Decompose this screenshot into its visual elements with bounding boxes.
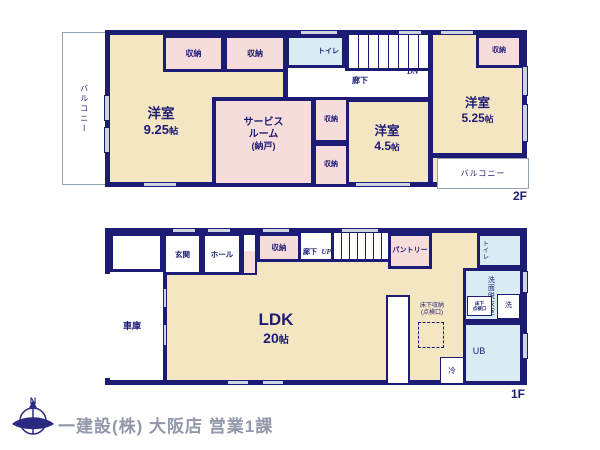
f2-corridor-label: 廊下 [352, 76, 368, 86]
f2-room-925-name: 洋室 [116, 106, 206, 122]
f1-toilet-label: トイレ [480, 236, 488, 264]
f1-washer-label: 洗 [505, 302, 512, 310]
f1-shoe-cabinet-lower [244, 251, 255, 273]
f2-service-room-label-1: サービス [216, 117, 311, 129]
f1-entrance-room: 玄関 [163, 233, 202, 275]
f1-floor-hatch-label-2: 点検口 [473, 306, 487, 311]
window [143, 182, 177, 187]
f1-underfloor-storage-hatch [418, 322, 444, 348]
f1-closet: 収納 [257, 233, 301, 262]
f2-balcony-left: バルコニー [62, 32, 106, 185]
f2-closet-b: 収納 [224, 35, 286, 72]
f2-closet-a-label: 収納 [186, 49, 202, 59]
f2-closet-c: 収納 [313, 97, 349, 143]
window [104, 95, 110, 121]
window [207, 228, 231, 233]
window [341, 228, 379, 233]
f2-stairs [345, 35, 428, 71]
f1-corridor-up: 廊下 UP [303, 241, 331, 259]
f1-fridge-label: 冷 [448, 366, 456, 375]
f2-service-room-label-3: (納戸) [216, 141, 311, 152]
f2-closet-c-label: 収納 [324, 116, 338, 124]
window [355, 182, 411, 187]
f1-kitchen-counter [386, 295, 410, 385]
f1-closet-label: 収納 [272, 243, 287, 252]
compass-icon: N [12, 396, 54, 434]
f2-closet-a: 収納 [163, 35, 224, 72]
f1-pantry: パントリー [388, 233, 432, 269]
f1-floor-hatch: 床下 点検口 [467, 296, 492, 316]
f2-room-525-name: 洋室 [433, 96, 522, 111]
f1-ldk-name: LDK [226, 310, 326, 330]
window [227, 380, 249, 385]
f2-room-45: 洋室 4.5帖 [347, 124, 427, 153]
f2-stairs-dn-label: DN [407, 67, 419, 77]
f2-room-925: 洋室 9.25帖 [116, 106, 206, 138]
f2-balcony-left-label: バルコニー [79, 84, 89, 134]
floor-plan: バルコニー 収納 収納 トイレ 廊下 DN サービス ルーム (納戸) 収納 収… [0, 0, 600, 450]
compass-north-label: N [30, 396, 37, 406]
f1-washer-pan: 洗 [497, 294, 520, 319]
f2-room-45-size: 4.5 [374, 139, 391, 153]
window [522, 66, 528, 96]
f2-room-525-unit: 帖 [485, 114, 494, 124]
window [262, 380, 284, 385]
f1-pantry-label: パントリー [392, 247, 427, 255]
window [522, 271, 528, 293]
window [262, 228, 290, 233]
window [104, 127, 110, 153]
f1-underfloor-storage: 床下収納 (点検口) [412, 303, 452, 317]
f2-service-room: サービス ルーム (納戸) [212, 97, 315, 187]
footer-company-text: 一建設(株) 大阪店 営業1課 [58, 412, 273, 437]
f2-room-925-size: 9.25 [144, 122, 169, 137]
window [300, 30, 338, 35]
window [163, 324, 167, 346]
window [398, 30, 422, 35]
f1-ldk-size: 20 [263, 330, 279, 346]
f1-stairs-up-label: UP [321, 248, 330, 256]
f2-closet-e: 収納 [476, 35, 522, 68]
f2-closet-d-label: 収納 [324, 161, 338, 169]
f1-garage-label: 車庫 [107, 321, 157, 332]
f1-stairs [331, 233, 388, 259]
window [522, 104, 528, 142]
f2-toilet-label: トイレ [318, 48, 339, 56]
f1-corridor-label: 廊下 [303, 249, 317, 256]
f2-balcony-right-label: バルコニー [461, 169, 506, 179]
f2-balcony-right: バルコニー [437, 158, 529, 189]
f2-floor-label: 2F [495, 189, 527, 203]
f2-closet-d: 収納 [313, 143, 349, 187]
f1-hall-label: ホール [211, 250, 234, 259]
f2-closet-b-label: 収納 [247, 49, 263, 59]
f2-room-45-name: 洋室 [347, 124, 427, 139]
window [172, 228, 196, 233]
window [440, 30, 474, 35]
f2-closet-e-label: 収納 [492, 47, 506, 55]
f1-hall-room: ホール [202, 233, 242, 275]
f1-shoe-cabinet [242, 233, 257, 275]
f1-ldk: LDK 20帖 [226, 310, 326, 347]
f2-service-room-label-2: ルーム [216, 129, 311, 141]
f1-unit-bath-label: UB [468, 346, 490, 357]
f1-fridge: 冷 [440, 357, 464, 384]
f2-toilet-room: トイレ [286, 35, 345, 68]
f2-room-525-size: 5.25 [462, 111, 485, 125]
f2-room-925-unit: 帖 [169, 126, 178, 136]
f1-entrance-label: 玄関 [175, 250, 190, 259]
f1-entrance-porch [110, 233, 163, 272]
f1-underfloor-storage-label-2: (点検口) [412, 310, 452, 317]
f2-room-525: 洋室 5.25帖 [433, 96, 522, 125]
f1-floor-label: 1F [493, 387, 525, 401]
window [522, 333, 528, 359]
wall [283, 68, 288, 97]
f2-room-45-unit: 帖 [391, 142, 400, 152]
window [163, 288, 167, 308]
f1-ldk-unit: 帖 [279, 335, 289, 346]
